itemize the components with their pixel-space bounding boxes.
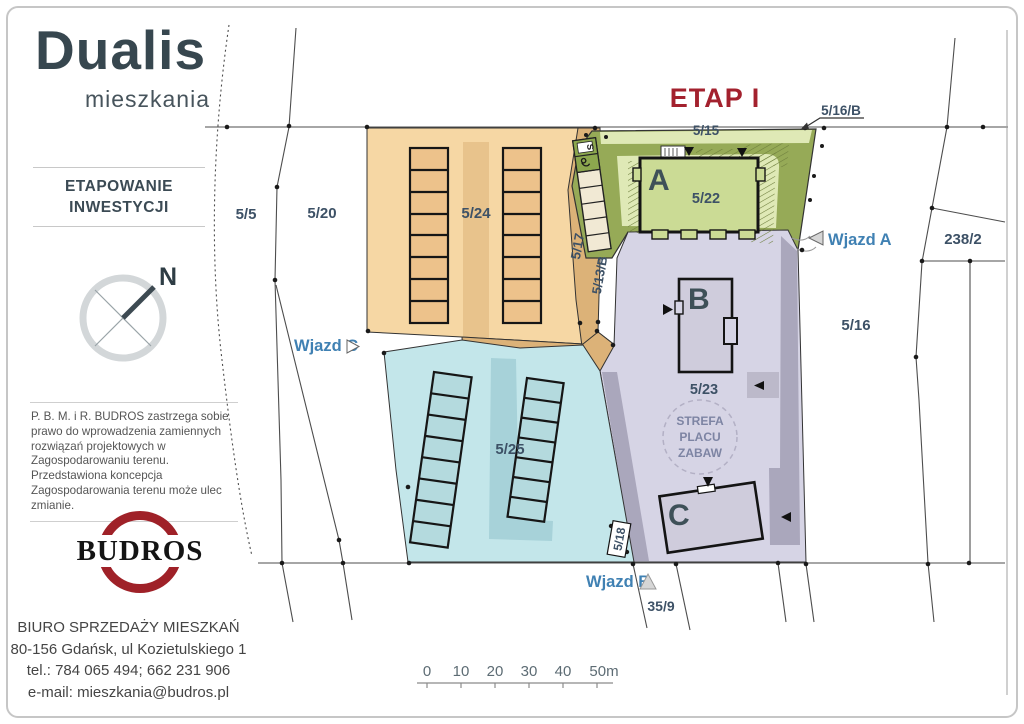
- building-c-letter: C: [668, 499, 690, 532]
- garage-row-orange-right: [503, 148, 541, 323]
- entrance-label-a: Wjazd A: [828, 231, 892, 249]
- scale-tick-20: 20: [487, 663, 504, 680]
- parcel-label-5-20: 5/20: [307, 205, 336, 222]
- compass-icon: N: [70, 255, 190, 375]
- scale-tick-40: 40: [555, 663, 572, 680]
- contact-block: BIURO SPRZEDAŻY MIESZKAŃ 80-156 Gdańsk, …: [10, 617, 247, 703]
- playground-line1: STREFA: [676, 414, 724, 428]
- logo-title: Dualis: [35, 18, 206, 82]
- section-label-line2: INWESTYCJI: [33, 197, 205, 218]
- building-a[interactable]: A 5/22: [633, 158, 765, 239]
- scale-tick-10: 10: [453, 663, 470, 680]
- scale-tick-0: 0: [423, 663, 431, 680]
- entrance-a: Wjazd A: [809, 231, 892, 249]
- scale-tick-30: 30: [521, 663, 538, 680]
- entrance-c: Wjazd C: [294, 337, 359, 355]
- orange-driveway: [463, 142, 489, 340]
- stage-title: ETAP I: [670, 83, 761, 113]
- parcel-label-35-9: 35/9: [647, 598, 674, 614]
- building-b-letter: B: [688, 283, 710, 316]
- parcel-label-5-24: 5/24: [461, 205, 491, 222]
- contact-address: 80-156 Gdańsk, ul Kozietulskiego 1: [10, 639, 247, 661]
- contact-email: e-mail: mieszkania@budros.pl: [10, 682, 247, 704]
- budros-logo: BUDROS: [58, 502, 222, 602]
- entrance-arrow-a: [809, 231, 823, 245]
- playground-line2: PLACU: [679, 430, 720, 444]
- parcel-label-5-15: 5/15: [693, 123, 720, 138]
- parcel-label-238-2: 238/2: [944, 231, 982, 248]
- parcel-label-5-16b-group: 5/16/B: [800, 103, 864, 130]
- building-a-letter: A: [648, 164, 670, 197]
- parcel-label-5-16b: 5/16/B: [821, 103, 861, 118]
- playground-line3: ZABAW: [678, 446, 723, 460]
- logo-subtitle: mieszkania: [0, 86, 210, 113]
- parcel-label-5-22: 5/22: [692, 191, 720, 207]
- section-label-line1: ETAPOWANIE: [33, 176, 205, 197]
- scale-bar: 0 10 20 30 40 50m: [405, 655, 645, 700]
- brochure-page: S A 5/22: [0, 0, 1024, 724]
- section-label: ETAPOWANIE INWESTYCJI: [33, 167, 205, 227]
- budros-name: BUDROS: [58, 535, 222, 568]
- parcel-label-5-23: 5/23: [690, 382, 718, 398]
- parcel-label-5-16: 5/16: [841, 317, 870, 334]
- garage-row-orange-left: [410, 148, 448, 323]
- parcel-label-5-5: 5/5: [236, 206, 257, 223]
- entrance-b: Wjazd B: [586, 573, 656, 591]
- scale-tick-50m: 50m: [589, 663, 618, 680]
- parcel-label-5-25: 5/25: [495, 441, 524, 458]
- compass-n-label: N: [159, 263, 177, 291]
- contact-office: BIURO SPRZEDAŻY MIESZKAŃ: [10, 617, 247, 639]
- contact-phone: tel.: 784 065 494; 662 231 906: [10, 660, 247, 682]
